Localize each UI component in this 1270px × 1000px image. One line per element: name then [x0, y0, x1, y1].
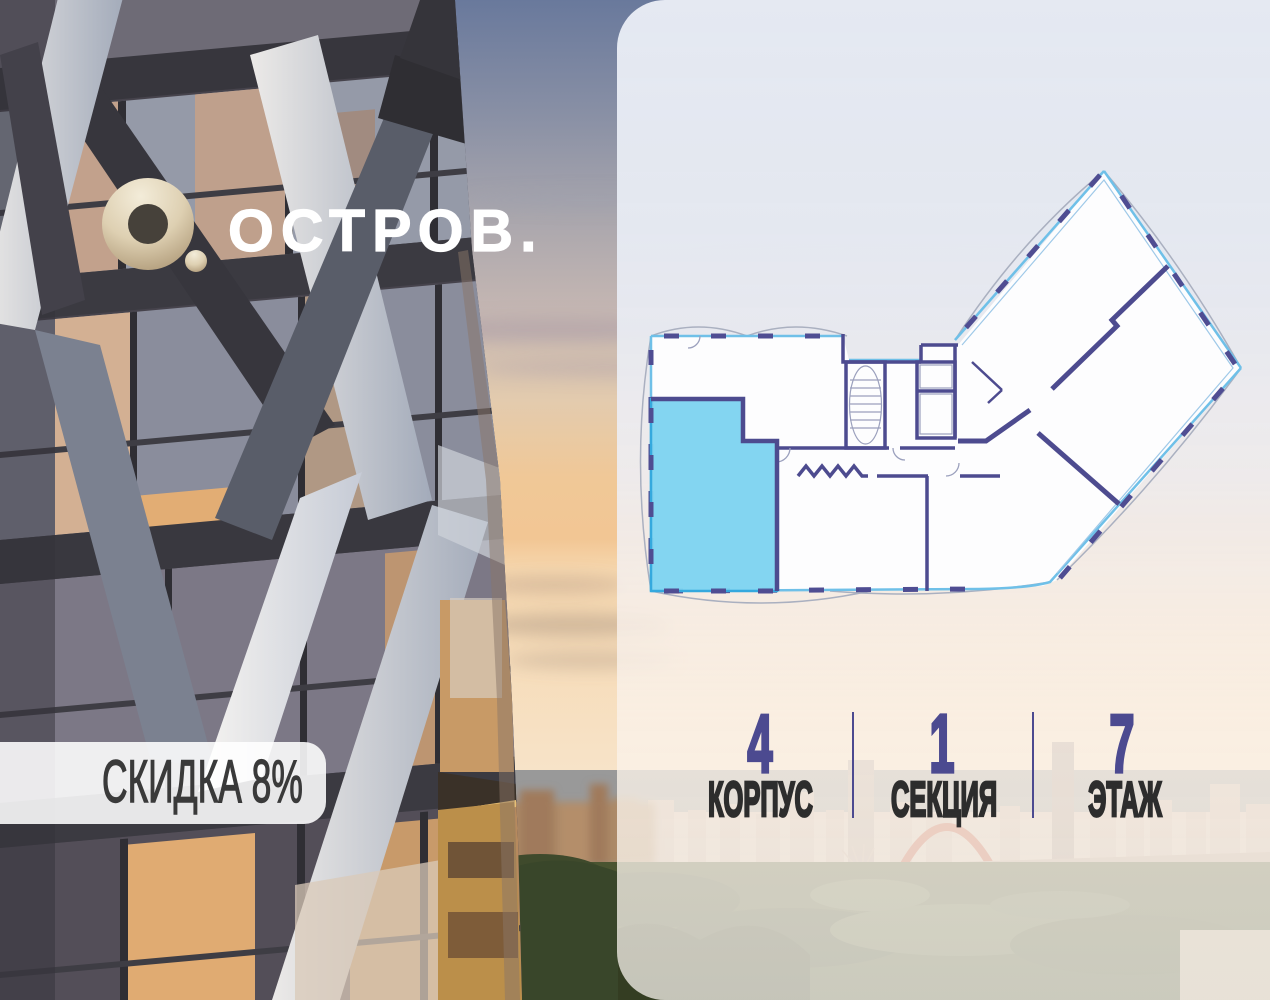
svg-text:ОСТРОВ.: ОСТРОВ. [228, 198, 544, 264]
